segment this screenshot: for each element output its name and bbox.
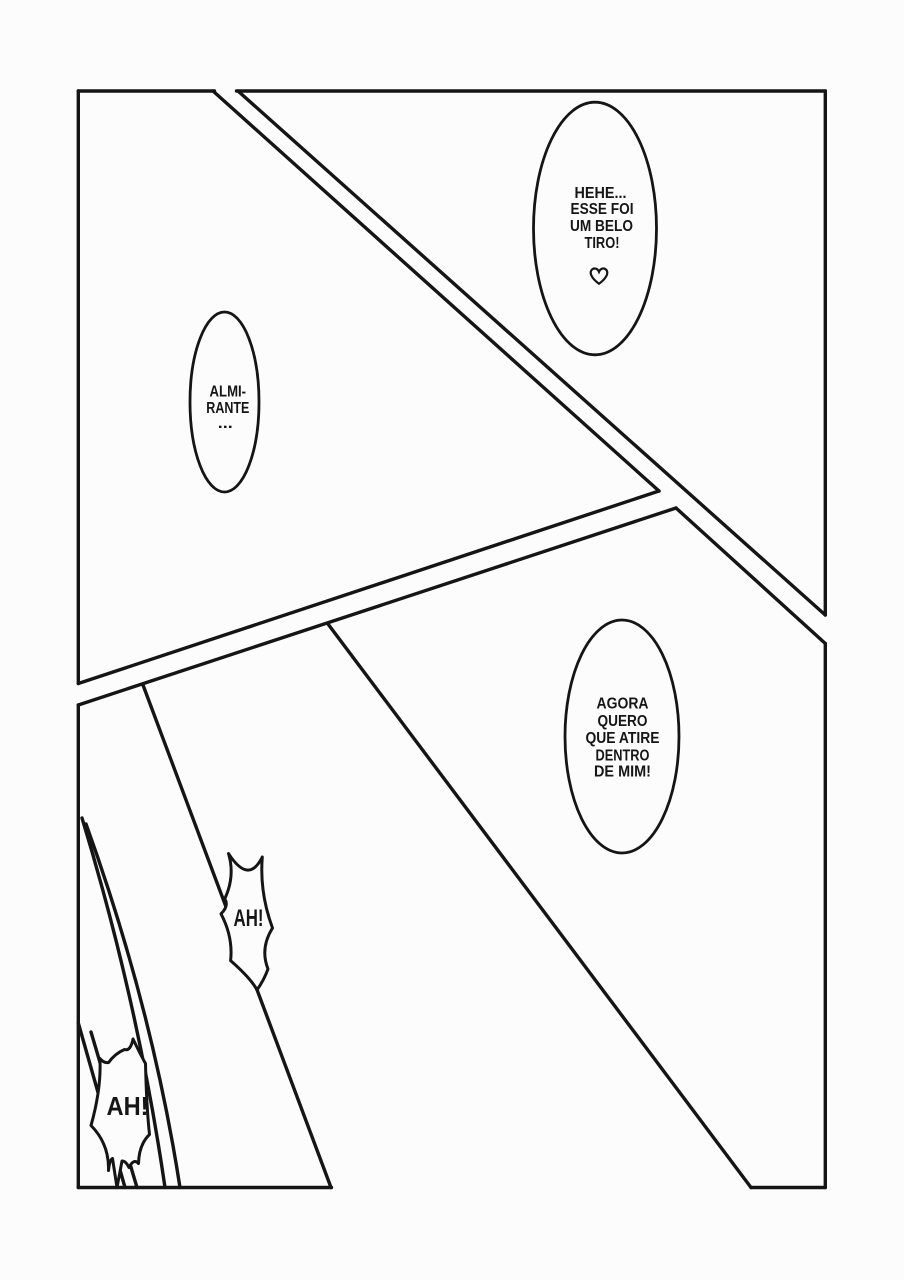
svg-text:ALMI-: ALMI- [210,384,247,401]
svg-text:UM BELO: UM BELO [570,218,633,235]
svg-text:DE MIM!: DE MIM! [594,763,651,780]
svg-text:ESSE FOI: ESSE FOI [571,201,634,218]
svg-text:...: ... [218,415,233,432]
svg-text:QUERO: QUERO [598,713,648,730]
svg-text:DENTRO: DENTRO [596,747,650,764]
svg-text:HEHE...: HEHE... [575,185,627,202]
svg-text:AGORA: AGORA [597,696,649,713]
svg-text:QUE ATIRE: QUE ATIRE [586,730,660,747]
svg-text:TIRO!: TIRO! [585,235,620,252]
svg-text:AH!: AH! [234,905,264,932]
svg-text:AH!: AH! [107,1091,149,1121]
